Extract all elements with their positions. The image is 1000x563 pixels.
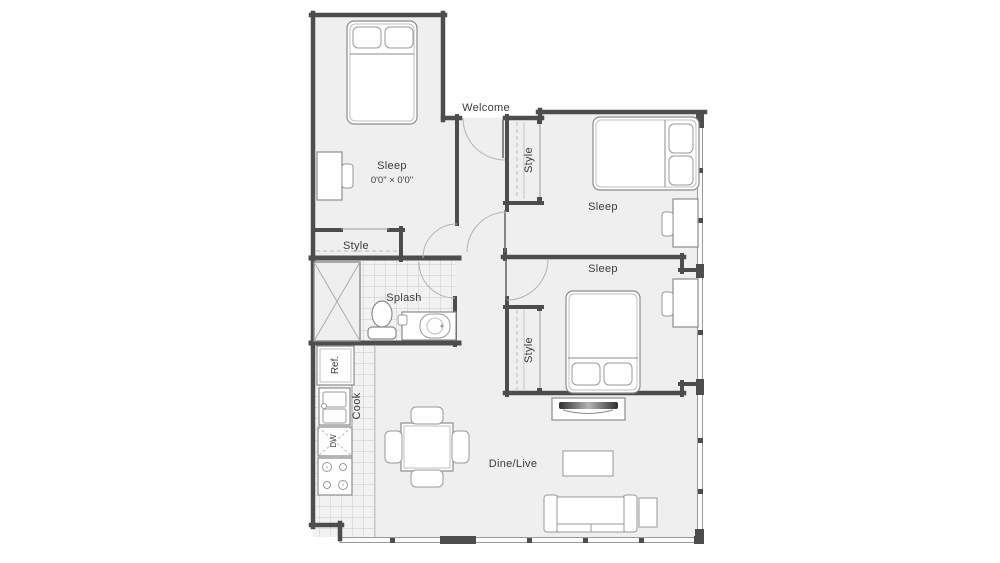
- bedroom-2-closet-label: Style: [523, 147, 535, 173]
- dishwasher-label: DW: [329, 434, 338, 448]
- kitchen-label: Cook: [351, 392, 363, 419]
- floor-plan-page: Welcome Sleep 0'0" × 0'0" Style Sleep St…: [0, 0, 1000, 563]
- stove: [318, 458, 352, 495]
- floor-plan-canvas: Welcome Sleep 0'0" × 0'0" Style Sleep St…: [0, 0, 1000, 563]
- bathroom-label: Splash: [386, 292, 421, 304]
- living-dining-label: Dine/Live: [489, 458, 538, 470]
- vanity-sink: [398, 312, 456, 340]
- bedroom-1-closet-label: Style: [343, 240, 369, 252]
- shower: [314, 262, 360, 341]
- refrigerator-label: Ref.: [330, 356, 341, 374]
- bed-icon: [593, 117, 699, 190]
- bedroom-3-closet-label: Style: [523, 337, 535, 363]
- bedroom-2-label: Sleep: [588, 201, 618, 213]
- bedroom-1-dimensions: 0'0" × 0'0": [371, 175, 413, 186]
- kitchen-sink: [319, 388, 350, 425]
- entry-label: Welcome: [462, 102, 510, 114]
- coffee-table-icon: [563, 451, 613, 476]
- end-table-icon: [639, 498, 657, 527]
- sofa-icon: [544, 495, 637, 532]
- tv-console-icon: [552, 398, 625, 420]
- bedroom-1-label: Sleep: [377, 160, 407, 172]
- bed-icon: [347, 21, 417, 124]
- bedroom-3-label: Sleep: [588, 263, 618, 275]
- bed-icon: [566, 291, 640, 393]
